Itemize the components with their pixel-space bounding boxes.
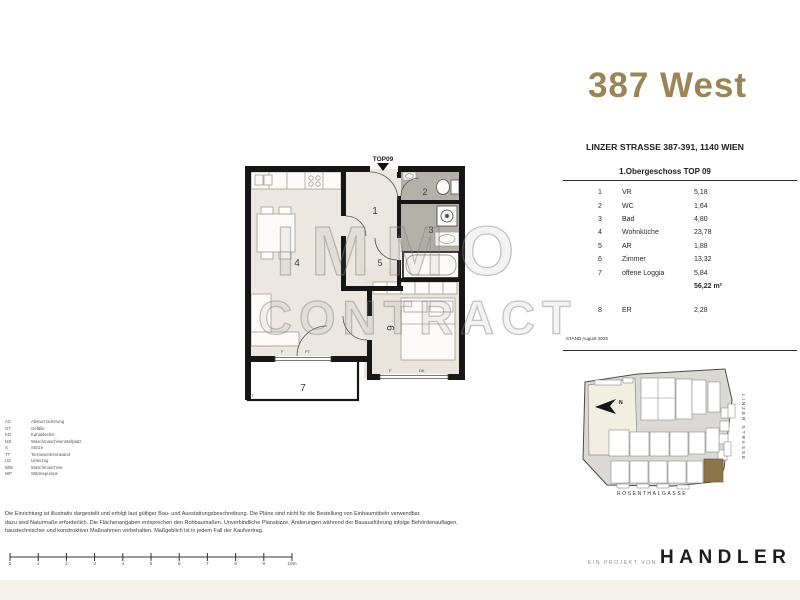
floorplan-drawing: TOP09 1 2 3 4 5 6 7 TT F FT F DK xyxy=(233,148,485,404)
scale-bar-labels: 0 1 2 3 4 5 6 7 8 9 10m xyxy=(8,562,298,570)
table-row: 6 Zimmer 13,32 xyxy=(563,253,797,266)
legend-item: WPWärmepumpe xyxy=(5,471,81,478)
room-num: 5 xyxy=(598,243,622,250)
dining-table xyxy=(257,214,295,252)
total-area: 56,22 m² xyxy=(694,283,797,290)
project-address: LINZER STRASSE 387-391, 1140 WIEN xyxy=(540,142,790,152)
street-label-linzer-strasse: LINZER STRASSE xyxy=(741,394,746,461)
room-name: Bad xyxy=(622,216,694,223)
room-name: VR xyxy=(622,189,694,196)
stove-burner-icon xyxy=(309,176,313,180)
toilet-icon xyxy=(451,180,459,194)
floor-heading: 1.Obergeschoss TOP 09 xyxy=(540,167,790,176)
room-number-7: 7 xyxy=(300,383,306,394)
site-map: N LINZER STRASSE ROSENTHALGASSE xyxy=(575,358,800,508)
scale-bar xyxy=(8,552,298,562)
table-row: 7 offene Loggia 5,84 xyxy=(563,266,797,279)
pillow xyxy=(404,301,427,312)
developer-brand: HANDLER xyxy=(660,547,791,569)
room-area: 2,28 xyxy=(694,307,797,314)
room-num: 7 xyxy=(598,270,622,277)
room-number-5: 5 xyxy=(377,258,382,268)
room-name: AR xyxy=(622,243,694,250)
footer-band xyxy=(0,580,800,600)
table-row: 1 VR 5,18 xyxy=(563,186,797,199)
table-total-row: 56,22 m² xyxy=(563,280,797,293)
project-prefix: EIN PROJEKT VON xyxy=(588,560,657,566)
divider-rule-top xyxy=(563,180,797,181)
table-row: 2 WC 1,64 xyxy=(563,199,797,212)
room-number-3: 3 xyxy=(428,225,433,235)
abbreviation-legend: ASAbsturzsicherung GTGefälle KDKanaldeck… xyxy=(5,419,81,478)
room-num: 4 xyxy=(598,229,622,236)
room-name: WC xyxy=(622,203,694,210)
room-num: 1 xyxy=(598,189,622,196)
site-highlighted-unit xyxy=(704,459,723,482)
room-number-2: 2 xyxy=(422,187,427,197)
north-label: N xyxy=(619,400,623,406)
room-area: 23,78 xyxy=(694,229,797,236)
disclaimer-line: dazu sind Naturmaße erforderlich. Die Fl… xyxy=(5,519,520,528)
floorplan-sheet: 387 West LINZER STRASSE 387-391, 1140 WI… xyxy=(0,0,800,600)
disclaimer-line: Die Einrichtung ist illustrativ dargeste… xyxy=(5,510,520,519)
room-num: 6 xyxy=(598,256,622,263)
table-row: 3 Bad 4,80 xyxy=(563,213,797,226)
room-num: 8 xyxy=(598,307,622,314)
table-row: 4 Wohnküche 23,78 xyxy=(563,226,797,239)
room-area: 1,64 xyxy=(694,203,797,210)
page-title: 387 West xyxy=(545,66,790,106)
table-row: 5 AR 1,88 xyxy=(563,240,797,253)
disclaimer-text: Die Einrichtung ist illustrativ dargeste… xyxy=(5,510,520,536)
room-num: 2 xyxy=(598,203,622,210)
room-name: Zimmer xyxy=(622,256,694,263)
entry-label: TOP09 xyxy=(373,156,394,163)
room-name: ER xyxy=(622,307,694,314)
tt-label: TT xyxy=(249,393,254,398)
window-label-dk6: DK xyxy=(419,368,425,373)
room-number-4: 4 xyxy=(294,258,300,269)
room-area: 1,88 xyxy=(694,243,797,250)
disclaimer-line: haustechnischer und konstruktiver Maßnah… xyxy=(5,527,520,536)
room-number-1: 1 xyxy=(372,206,378,217)
room-name: offene Loggia xyxy=(622,270,694,277)
stand-date: STAND August 2025 xyxy=(566,336,608,341)
divider-rule-bottom xyxy=(563,350,797,351)
room-name: Wohnküche xyxy=(622,229,694,236)
room-area: 13,32 xyxy=(694,256,797,263)
room-area: 5,84 xyxy=(694,270,797,277)
room-number-6: 6 xyxy=(384,325,395,331)
kitchen-sink-icon xyxy=(255,175,263,185)
area-table: 1 VR 5,18 2 WC 1,64 3 Bad 4,80 4 Wohnküc… xyxy=(563,186,797,318)
window-label-ft4: FT xyxy=(305,349,310,354)
table-extra-row: 8 ER 2,28 xyxy=(563,304,797,317)
street-label-rosenthalgasse: ROSENTHALGASSE xyxy=(617,491,687,497)
room-area: 4,80 xyxy=(694,216,797,223)
room-num: 3 xyxy=(598,216,622,223)
room-area: 5,18 xyxy=(694,189,797,196)
